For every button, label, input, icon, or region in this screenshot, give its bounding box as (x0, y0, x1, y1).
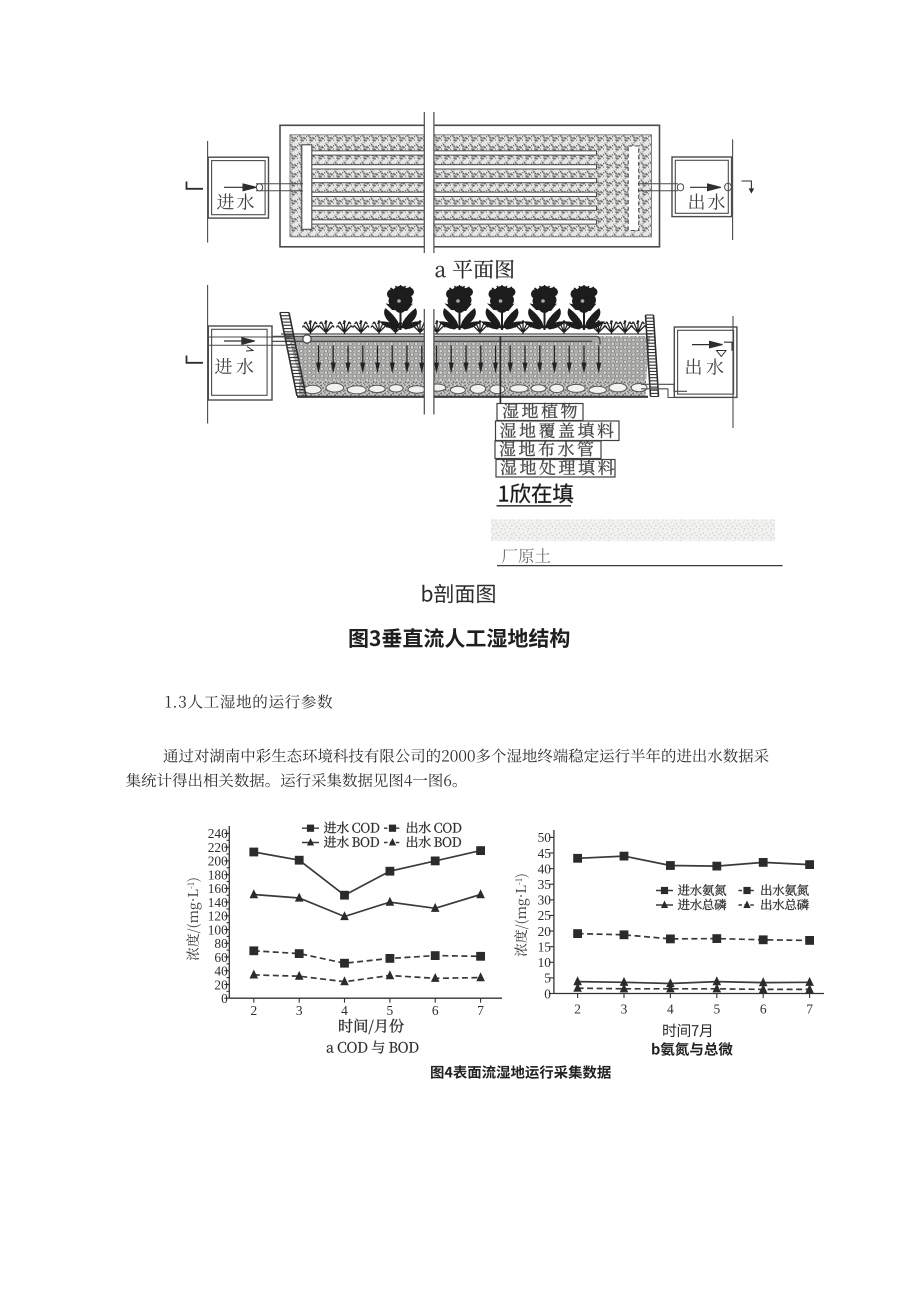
svg-text:10: 10 (538, 955, 552, 970)
svg-text:80: 80 (214, 936, 228, 951)
svg-text:0: 0 (221, 991, 228, 1006)
svg-text:200: 200 (208, 854, 228, 869)
svg-text:35: 35 (538, 877, 552, 892)
svg-text:45: 45 (538, 846, 552, 861)
svg-text:140: 140 (208, 895, 228, 910)
svg-text:7: 7 (477, 1003, 484, 1018)
svg-text:2: 2 (574, 1002, 581, 1017)
svg-text:100: 100 (208, 922, 228, 937)
svg-text:3: 3 (621, 1002, 628, 1017)
svg-text:5: 5 (544, 971, 551, 986)
svg-text:160: 160 (208, 881, 228, 896)
svg-text:20: 20 (214, 977, 228, 992)
svg-text:6: 6 (760, 1002, 767, 1017)
svg-text:0: 0 (544, 986, 551, 1001)
svg-text:15: 15 (538, 940, 552, 955)
svg-text:120: 120 (208, 909, 228, 924)
svg-text:50: 50 (538, 830, 552, 845)
svg-text:5: 5 (387, 1003, 394, 1018)
svg-text:20: 20 (538, 924, 552, 939)
svg-text:4: 4 (667, 1002, 674, 1017)
svg-text:2: 2 (250, 1003, 257, 1018)
svg-text:25: 25 (538, 908, 552, 923)
svg-text:180: 180 (208, 867, 228, 882)
svg-text:30: 30 (538, 893, 552, 908)
svg-text:240: 240 (208, 826, 228, 841)
svg-text:220: 220 (208, 840, 228, 855)
svg-text:3: 3 (296, 1003, 303, 1018)
svg-text:40: 40 (538, 861, 552, 876)
svg-text:40: 40 (214, 964, 228, 979)
svg-text:60: 60 (214, 950, 228, 965)
svg-text:6: 6 (432, 1003, 439, 1018)
svg-text:4: 4 (341, 1003, 348, 1018)
svg-text:5: 5 (713, 1002, 720, 1017)
svg-text:7: 7 (806, 1002, 813, 1017)
